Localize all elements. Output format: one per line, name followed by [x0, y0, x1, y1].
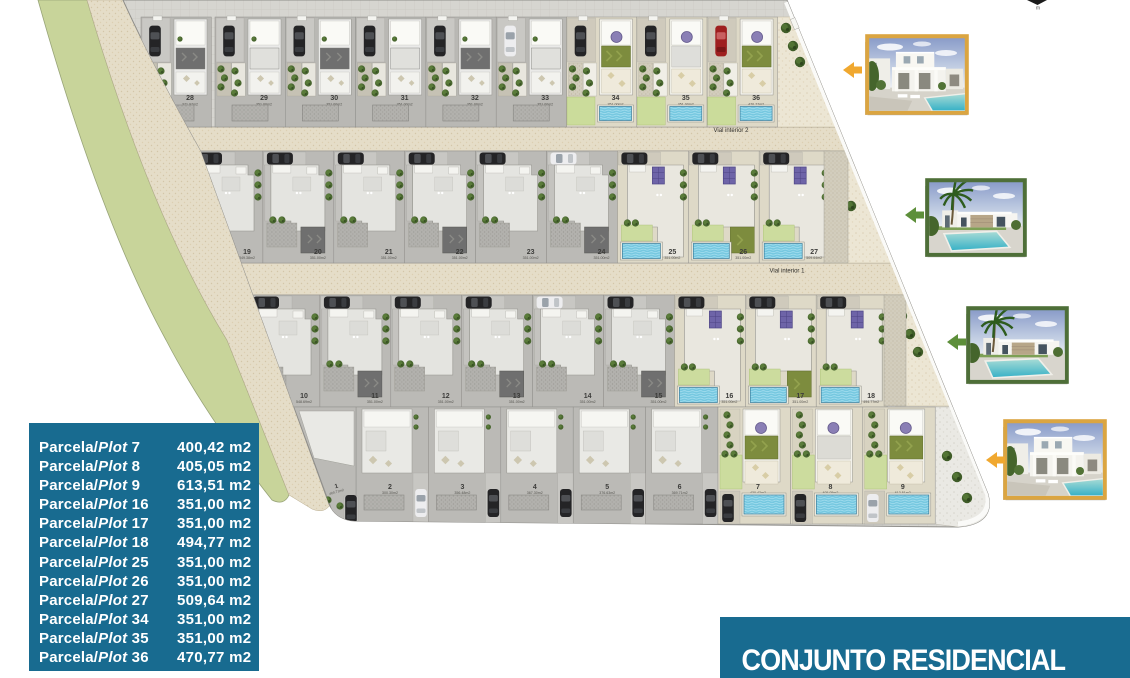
svg-text:32: 32 [471, 95, 479, 102]
svg-text:20: 20 [314, 249, 322, 256]
svg-text:30: 30 [330, 95, 338, 102]
svg-text:21: 21 [385, 249, 393, 256]
svg-text:351.00m2: 351.00m2 [509, 400, 525, 404]
svg-text:369.71m2: 369.71m2 [672, 491, 688, 495]
svg-text:28: 28 [186, 95, 194, 102]
svg-text:26: 26 [739, 249, 747, 256]
svg-text:8: 8 [828, 484, 832, 491]
svg-text:5: 5 [605, 484, 609, 491]
svg-text:351.00m2: 351.00m2 [381, 256, 397, 260]
svg-text:16: 16 [726, 393, 734, 400]
svg-text:12: 12 [442, 393, 450, 400]
svg-text:31: 31 [401, 95, 409, 102]
svg-text:349.38m2: 349.38m2 [239, 256, 255, 260]
svg-text:9: 9 [901, 484, 905, 491]
svg-text:351.00m2: 351.00m2 [310, 256, 326, 260]
svg-text:33: 33 [541, 95, 549, 102]
svg-text:351.00m2: 351.00m2 [721, 400, 737, 404]
svg-text:7: 7 [756, 484, 760, 491]
svg-text:29: 29 [260, 95, 268, 102]
svg-text:351.00m2: 351.00m2 [735, 256, 751, 260]
svg-text:494.77m2: 494.77m2 [863, 400, 879, 404]
svg-text:3: 3 [460, 484, 464, 491]
svg-text:351.00m2: 351.00m2 [452, 256, 468, 260]
svg-text:23: 23 [527, 249, 535, 256]
svg-text:367.30m2: 367.30m2 [527, 491, 543, 495]
svg-text:11: 11 [371, 393, 379, 400]
svg-text:351.00m2: 351.00m2 [651, 400, 667, 404]
svg-text:2: 2 [388, 484, 392, 491]
svg-text:18: 18 [867, 393, 875, 400]
svg-text:25: 25 [669, 249, 677, 256]
svg-text:376.63m2: 376.63m2 [599, 491, 615, 495]
svg-text:351.00m2: 351.00m2 [523, 256, 539, 260]
svg-text:351.00m2: 351.00m2 [580, 400, 596, 404]
svg-text:351.00m2: 351.00m2 [367, 400, 383, 404]
svg-text:351.00m2: 351.00m2 [438, 400, 454, 404]
svg-text:19: 19 [243, 249, 251, 256]
svg-text:351.00m2: 351.00m2 [664, 256, 680, 260]
svg-text:22: 22 [456, 249, 464, 256]
svg-text:13: 13 [513, 393, 521, 400]
svg-text:509.64m2: 509.64m2 [806, 256, 822, 260]
svg-text:Vial interior 2: Vial interior 2 [714, 128, 750, 134]
svg-text:Vial interior 1: Vial interior 1 [770, 269, 806, 275]
svg-text:17: 17 [796, 393, 804, 400]
svg-text:36: 36 [752, 95, 760, 102]
svg-text:15: 15 [655, 393, 663, 400]
svg-text:351.00m2: 351.00m2 [594, 256, 610, 260]
svg-text:6: 6 [678, 484, 682, 491]
svg-text:m: m [1036, 6, 1040, 12]
svg-text:300.30m2: 300.30m2 [382, 491, 398, 495]
svg-text:27: 27 [810, 249, 818, 256]
svg-text:24: 24 [598, 249, 606, 256]
svg-text:10: 10 [300, 393, 308, 400]
svg-text:34: 34 [612, 95, 620, 102]
svg-text:356.48m2: 356.48m2 [454, 491, 470, 495]
svg-text:35: 35 [682, 95, 690, 102]
svg-text:14: 14 [584, 393, 592, 400]
svg-text:351.00m2: 351.00m2 [792, 400, 808, 404]
svg-text:4: 4 [533, 484, 537, 491]
svg-text:548.69m2: 548.69m2 [296, 400, 312, 404]
